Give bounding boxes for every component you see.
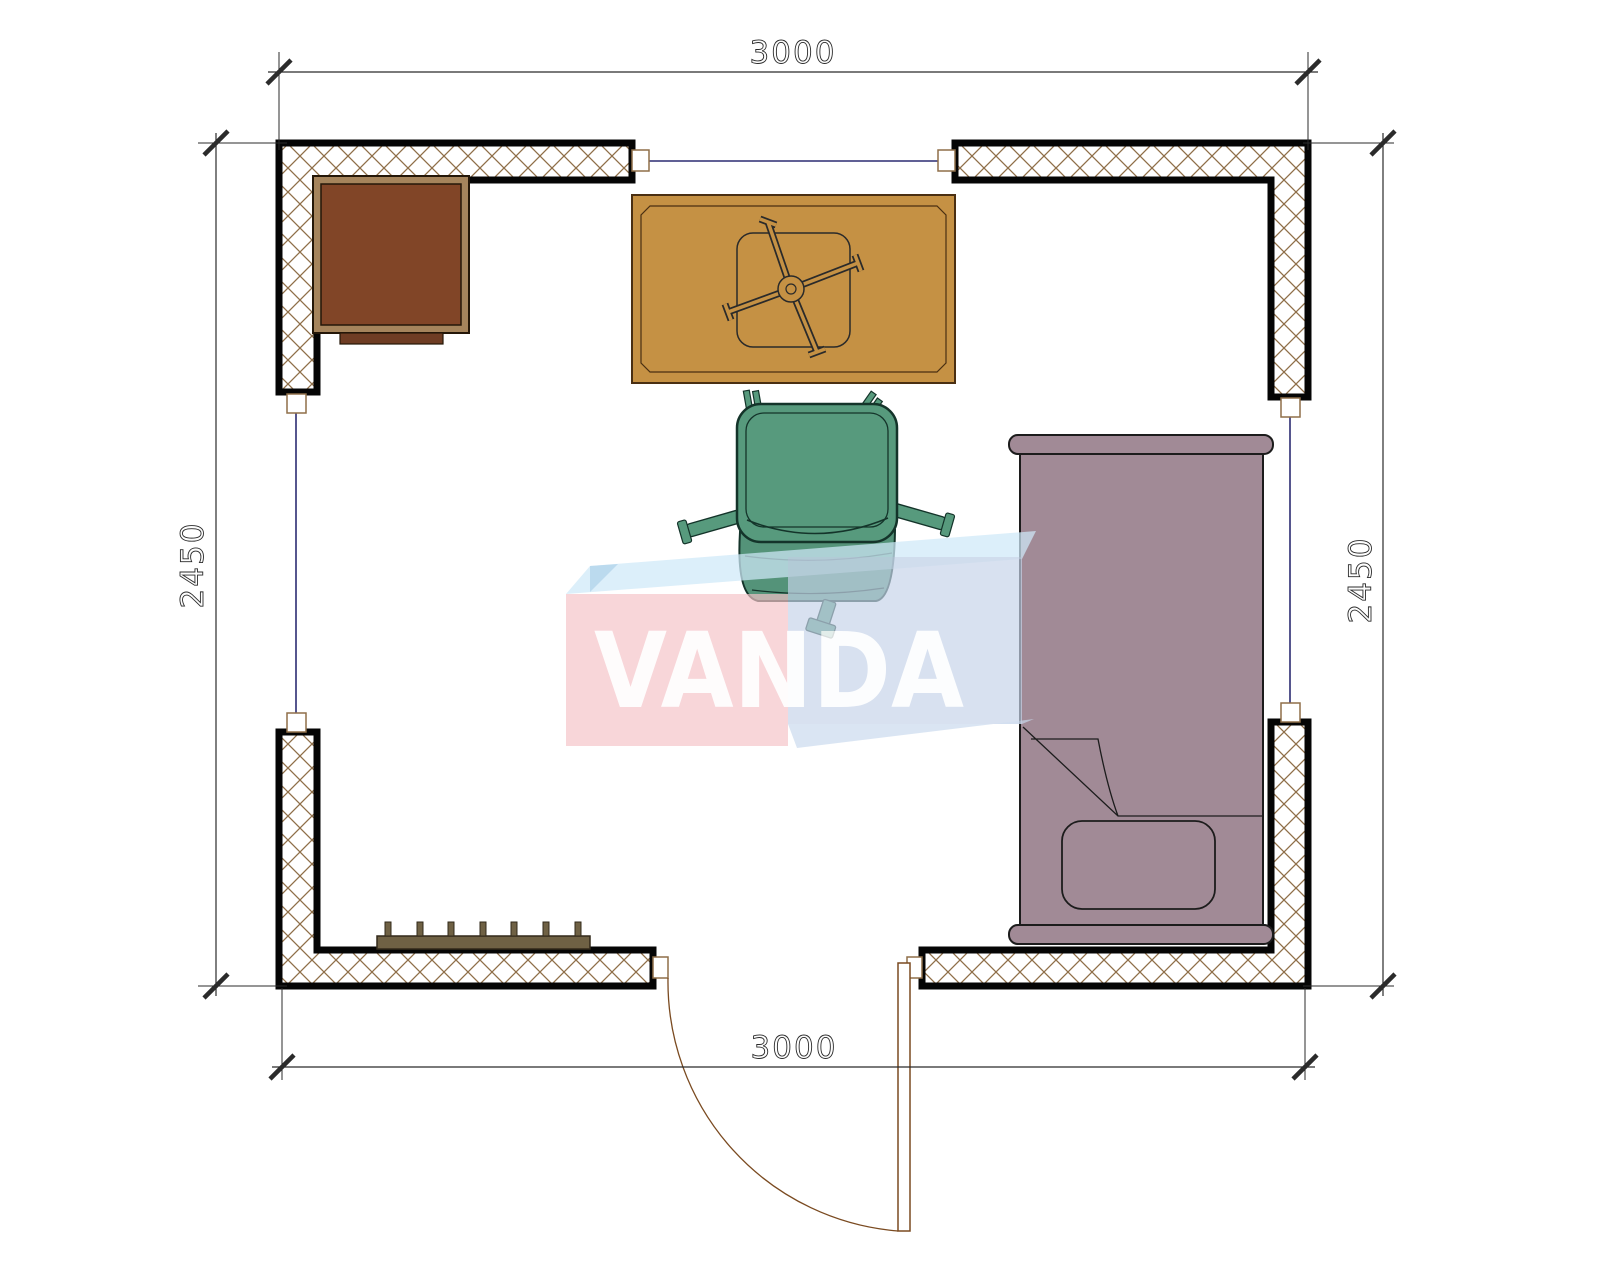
desk-drawer: [340, 333, 443, 344]
window-jamb: [287, 394, 306, 413]
table: [632, 195, 955, 383]
window-jamb: [287, 713, 306, 732]
window-jamb: [632, 150, 649, 171]
radiator-body: [377, 936, 590, 949]
radiator-fin: [511, 922, 517, 936]
bed: [1009, 435, 1273, 944]
radiator-fin: [543, 922, 549, 936]
dimension-label-left: 2450: [175, 522, 211, 609]
bed-pillow: [1062, 821, 1215, 909]
door-leaf: [898, 963, 910, 1231]
floor-plan-canvas: 3000 3000 2450 2450: [0, 0, 1600, 1280]
window-jamb: [938, 150, 955, 171]
bed-headboard: [1009, 435, 1273, 454]
vanda-watermark: VANDA: [566, 531, 1036, 748]
desk-top: [321, 184, 461, 325]
floor-plan-drawing: 3000 3000 2450 2450: [0, 0, 1600, 1280]
radiator-fin: [480, 922, 486, 936]
door-jamb-left: [653, 957, 668, 978]
window-jamb: [1281, 703, 1300, 722]
bed-footboard: [1009, 925, 1273, 944]
radiator-fin: [448, 922, 454, 936]
dimension-label-right: 2450: [1343, 537, 1379, 624]
radiator-fin: [385, 922, 391, 936]
watermark-text: VANDA: [594, 610, 964, 732]
radiator-fin: [417, 922, 423, 936]
dimension-label-top: 3000: [750, 35, 837, 71]
desk: [313, 176, 469, 344]
chair-backrest: [737, 404, 897, 542]
radiator-fin: [575, 922, 581, 936]
window-jamb: [1281, 398, 1300, 417]
dimension-label-bottom: 3000: [751, 1030, 838, 1066]
